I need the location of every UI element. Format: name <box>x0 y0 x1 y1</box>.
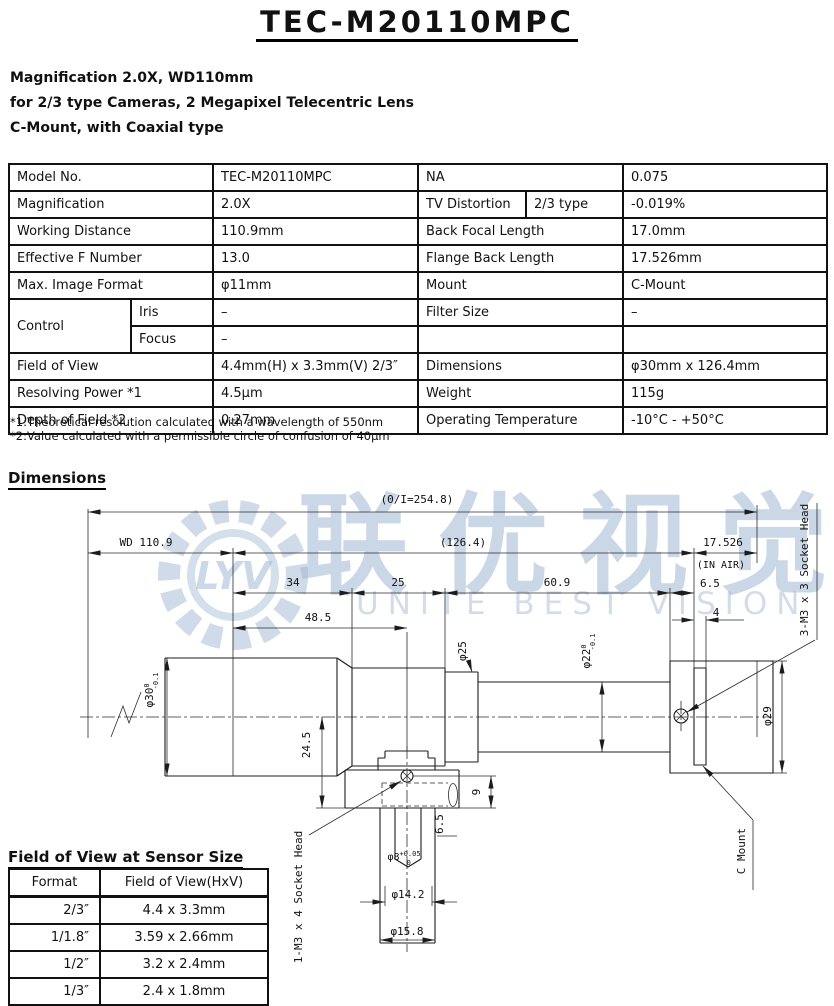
spec-cell: TV Distortion <box>418 191 526 218</box>
table-row: Field of View 4.4mm(H) x 3.3mm(V) 2/3″ D… <box>9 353 827 380</box>
spec-cell: Control <box>9 299 131 353</box>
fov-cell: 2.4 x 1.8mm <box>100 978 268 1005</box>
dim-phi25-label: φ25 <box>456 641 469 661</box>
spec-cell: Weight <box>418 380 623 407</box>
footnote-1: *1:Theoretical resolution calculated wit… <box>10 415 390 429</box>
spec-cell: Model No. <box>9 164 213 191</box>
dim-mid-label: (126.4) <box>440 536 486 549</box>
spec-cell: 17.0mm <box>623 218 827 245</box>
subtitle-line-2: for 2/3 type Cameras, 2 Megapixel Telece… <box>10 91 414 116</box>
fov-cell: 1/2″ <box>9 951 100 978</box>
spec-cell: -10°C - +50°C <box>623 407 827 434</box>
fov-cell: 3.59 x 2.66mm <box>100 924 268 951</box>
fov-cell: 3.2 x 2.4mm <box>100 951 268 978</box>
spec-cell <box>418 326 623 353</box>
datasheet-page: { "header": { "title": "TEC-M20110MPC", … <box>0 0 834 1003</box>
footnotes: *1:Theoretical resolution calculated wit… <box>10 415 390 443</box>
table-row: Magnification 2.0X TV Distortion 2/3 typ… <box>9 191 827 218</box>
spec-cell: -0.019% <box>623 191 827 218</box>
spec-cell: φ30mm x 126.4mm <box>623 353 827 380</box>
dim-phi22-label: φ220-0.1 <box>580 634 597 669</box>
dim-in-air-label: (IN AIR) <box>697 560 745 571</box>
spec-cell: φ11mm <box>213 272 418 299</box>
spec-cell: Effective F Number <box>9 245 213 272</box>
spec-cell: Operating Temperature <box>418 407 623 434</box>
extension-lines <box>88 505 787 906</box>
table-row: Effective F Number 13.0 Flange Back Leng… <box>9 245 827 272</box>
spec-cell: TEC-M20110MPC <box>213 164 418 191</box>
spec-cell: 0.075 <box>623 164 827 191</box>
spec-cell: Focus <box>131 326 213 353</box>
table-row: 1/1.8″ 3.59 x 2.66mm <box>9 924 268 951</box>
spec-table: Model No. TEC-M20110MPC NA 0.075 Magnifi… <box>8 163 828 435</box>
spec-cell: 2/3 type <box>526 191 623 218</box>
dim-phi29-label: φ29 <box>761 706 774 726</box>
subtitle-line-3: C-Mount, with Coaxial type <box>10 116 414 141</box>
dim-phi142-label: φ14.2 <box>391 888 424 901</box>
fov-cell: 2/3″ <box>9 897 100 925</box>
spec-cell: Max. Image Format <box>9 272 213 299</box>
side-hole <box>449 784 458 807</box>
subtitle: Magnification 2.0X, WD110mm for 2/3 type… <box>10 66 414 141</box>
spec-cell: NA <box>418 164 623 191</box>
fov-header-fov: Field of View(HxV) <box>100 869 268 897</box>
horizontal-dimensions: (0/I=254.8) WD 110.9 (126.4) 17.526 (IN … <box>88 493 757 628</box>
title-wrap: TEC-M20110MPC <box>0 6 834 42</box>
callout-socket1-label: 1-M3 x 4 Socket Head <box>292 831 305 963</box>
dim-485-label: 48.5 <box>305 611 332 624</box>
callouts: 3-M3 x 3 Socket Head 1-M3 x 4 Socket Hea… <box>292 503 817 963</box>
spec-cell <box>623 326 827 353</box>
dim-phi30-label: φ300-0.1 <box>143 673 160 708</box>
fov-cell: 1/1.8″ <box>9 924 100 951</box>
table-row: Format Field of View(HxV) <box>9 869 268 897</box>
spec-cell: 17.526mm <box>623 245 827 272</box>
table-row: 2/3″ 4.4 x 3.3mm <box>9 897 268 925</box>
spec-cell: Resolving Power *1 <box>9 380 213 407</box>
dim-4-label: 4 <box>713 606 720 619</box>
spec-cell: 110.9mm <box>213 218 418 245</box>
dim-245-label: 24.5 <box>300 732 313 759</box>
spec-cell: Filter Size <box>418 299 623 326</box>
dim-wd-label: WD 110.9 <box>120 536 173 549</box>
fov-cell: 1/3″ <box>9 978 100 1005</box>
dim-overall-label: (0/I=254.8) <box>381 493 454 506</box>
spec-cell: Mount <box>418 272 623 299</box>
spec-cell: 4.4mm(H) x 3.3mm(V) 2/3″ <box>213 353 418 380</box>
subtitle-line-1: Magnification 2.0X, WD110mm <box>10 66 414 91</box>
spec-cell: Working Distance <box>9 218 213 245</box>
dim-phi158-label: φ15.8 <box>390 925 423 938</box>
dim-flange-label: 17.526 <box>703 536 743 549</box>
table-row: Max. Image Format φ11mm Mount C-Mount <box>9 272 827 299</box>
fov-table: Format Field of View(HxV) 2/3″ 4.4 x 3.3… <box>8 868 269 1006</box>
dim-25-label: 25 <box>391 576 404 589</box>
fov-cell: 4.4 x 3.3mm <box>100 897 268 925</box>
fov-header-format: Format <box>9 869 100 897</box>
table-row: 1/2″ 3.2 x 2.4mm <box>9 951 268 978</box>
spec-cell: Dimensions <box>418 353 623 380</box>
callout-cmount-label: C Mount <box>735 828 748 874</box>
dim-34-label: 34 <box>286 576 300 589</box>
dim-65-label: 6.5 <box>700 577 720 590</box>
callout-socket3-label: 3-M3 x 3 Socket Head <box>798 504 811 636</box>
spec-cell: 13.0 <box>213 245 418 272</box>
spec-cell: – <box>213 326 418 353</box>
table-row: 1/3″ 2.4 x 1.8mm <box>9 978 268 1005</box>
spec-cell: C-Mount <box>623 272 827 299</box>
spec-cell: 2.0X <box>213 191 418 218</box>
spec-cell: – <box>623 299 827 326</box>
dim-9-label: 9 <box>470 789 483 796</box>
spec-cell: Magnification <box>9 191 213 218</box>
table-row: Resolving Power *1 4.5μm Weight 115g <box>9 380 827 407</box>
spec-cell: Flange Back Length <box>418 245 623 272</box>
dim-65-port-label: 6.5 <box>433 814 446 834</box>
break-symbol <box>111 692 141 737</box>
fov-heading: Field of View at Sensor Size <box>8 848 243 869</box>
coaxial-port <box>345 751 459 943</box>
table-row: Working Distance 110.9mm Back Focal Leng… <box>9 218 827 245</box>
page-title: TEC-M20110MPC <box>256 6 578 42</box>
table-row: Control Iris – Filter Size – <box>9 299 827 326</box>
table-row: Focus – <box>9 326 827 353</box>
spec-cell: – <box>213 299 418 326</box>
table-row: Model No. TEC-M20110MPC NA 0.075 <box>9 164 827 191</box>
spec-cell: Back Focal Length <box>418 218 623 245</box>
dim-609-label: 60.9 <box>544 576 571 589</box>
spec-cell: 115g <box>623 380 827 407</box>
spec-cell: Field of View <box>9 353 213 380</box>
footnote-2: *2:Value calculated with a permissible c… <box>10 429 390 443</box>
dimensions-heading: Dimensions <box>8 469 106 490</box>
spec-cell: Iris <box>131 299 213 326</box>
spec-cell: 4.5μm <box>213 380 418 407</box>
